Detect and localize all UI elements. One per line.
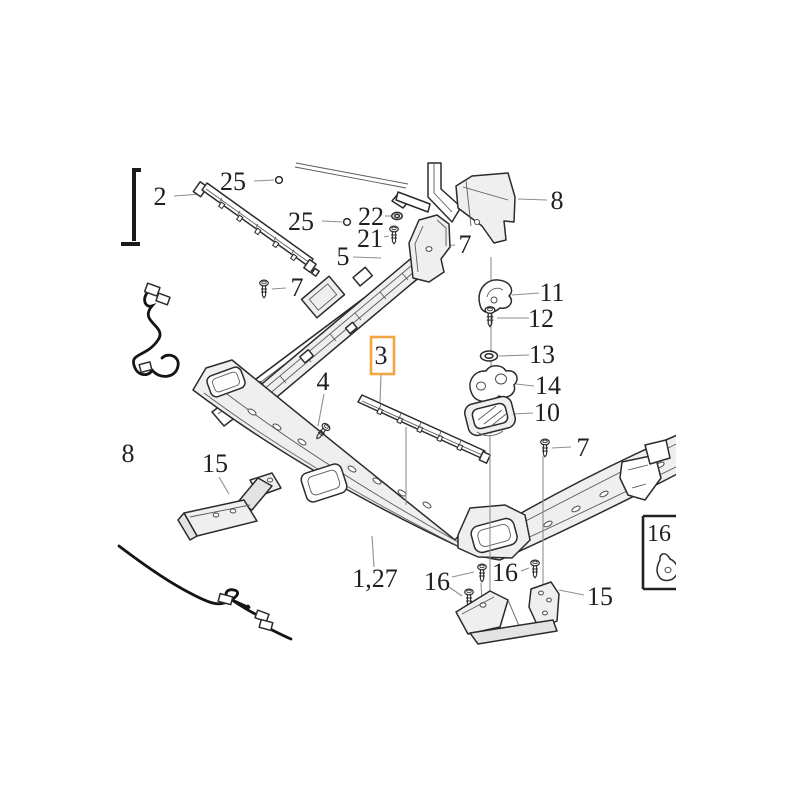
callout-15[interactable]: 15 [202, 449, 228, 478]
screw-16-icon [531, 560, 540, 578]
crop-whitespace [676, 0, 800, 800]
callout-7[interactable]: 7 [577, 433, 590, 462]
screw-12-icon [485, 307, 495, 327]
washer-13-icon [481, 351, 498, 361]
clip-25-icon [344, 219, 351, 226]
callout-13[interactable]: 13 [529, 340, 555, 369]
part-10-grommet [463, 395, 517, 438]
callout-7[interactable]: 7 [459, 230, 472, 259]
callout-7[interactable]: 7 [291, 273, 304, 302]
crop-corner-mark [121, 170, 141, 244]
callout-4[interactable]: 4 [317, 367, 330, 396]
wiring-harness-upper [133, 283, 178, 376]
screw-21-icon [390, 226, 399, 244]
callout-14[interactable]: 14 [535, 371, 561, 400]
part-15-bracket-left [178, 473, 281, 540]
trim-strip [295, 163, 408, 208]
washer-22-icon [392, 212, 402, 219]
callout-12[interactable]: 12 [528, 304, 554, 333]
callout-10[interactable]: 10 [534, 398, 560, 427]
screw-16-icon [478, 564, 487, 582]
clip-25-icon [276, 177, 283, 184]
callout-11[interactable]: 11 [539, 278, 564, 307]
callout-1-27[interactable]: 1,27 [352, 564, 398, 593]
screw-7-icon [260, 280, 269, 298]
callout-25[interactable]: 25 [220, 167, 246, 196]
callout-8[interactable]: 8 [551, 186, 564, 215]
screw-7-icon [541, 439, 550, 457]
callout-8[interactable]: 8 [122, 439, 135, 468]
part-1-front-frame [193, 360, 700, 560]
callout-21[interactable]: 21 [357, 224, 383, 253]
part-11-clip [479, 280, 511, 313]
wiring-harness-lower [119, 546, 291, 639]
callout-25[interactable]: 25 [288, 207, 314, 236]
inset-callout-16[interactable]: 16 [647, 521, 671, 547]
callout-15[interactable]: 15 [587, 582, 613, 611]
callout-5[interactable]: 5 [337, 242, 350, 271]
exploded-view-drawing: 2 25 25 22 21 5 7 8 7 11 12 13 14 10 3 4… [0, 0, 800, 800]
callout-16[interactable]: 16 [492, 558, 518, 587]
callout-3-highlighted[interactable]: 3 [375, 341, 388, 370]
callout-16[interactable]: 16 [424, 567, 450, 596]
part-14-hook [470, 366, 517, 402]
parts-diagram-canvas: 2 25 25 22 21 5 7 8 7 11 12 13 14 10 3 4… [0, 0, 800, 800]
callout-2[interactable]: 2 [154, 182, 167, 211]
